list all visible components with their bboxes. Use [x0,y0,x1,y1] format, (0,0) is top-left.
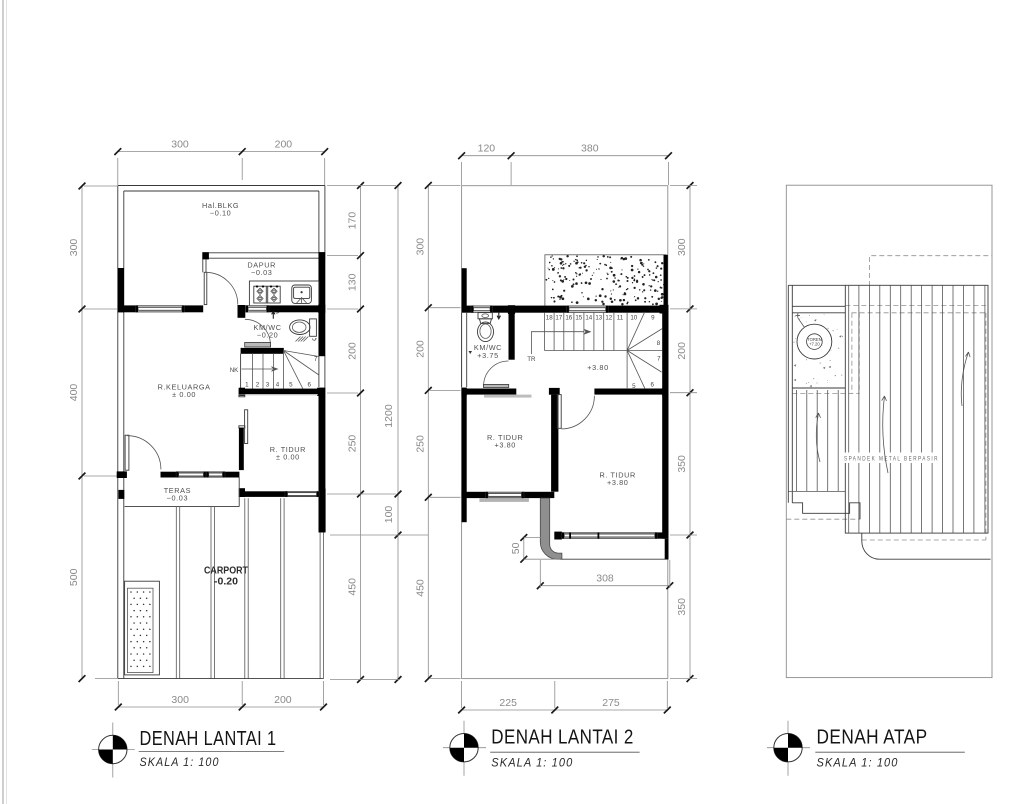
svg-text:DENAH ATAP: DENAH ATAP [817,727,928,749]
svg-text:TR: TR [527,356,536,363]
svg-text:3: 3 [266,382,270,389]
svg-text:120: 120 [478,143,496,155]
svg-text:250: 250 [347,435,359,453]
svg-text:450: 450 [347,578,359,596]
svg-text:−0.10: −0.10 [210,209,231,218]
svg-text:200: 200 [275,139,293,151]
svg-text:7: 7 [314,356,318,363]
svg-text:NK: NK [230,367,239,374]
svg-text:450: 450 [414,579,426,597]
svg-text:15: 15 [575,314,582,321]
svg-text:1200: 1200 [383,404,395,428]
svg-text:350: 350 [676,598,688,616]
svg-text:13: 13 [595,314,602,321]
svg-text:6: 6 [650,381,654,388]
svg-text:16: 16 [565,314,572,321]
svg-text:-0.20: -0.20 [214,577,239,588]
svg-text:130: 130 [347,273,359,291]
svg-text:200: 200 [414,340,426,358]
svg-text:+3.80: +3.80 [494,440,515,449]
svg-text:1: 1 [245,382,249,389]
svg-text:500: 500 [68,568,80,586]
svg-text:200: 200 [274,694,292,706]
svg-text:225: 225 [499,697,517,709]
svg-text:9: 9 [651,314,655,321]
svg-text:5: 5 [289,382,293,389]
svg-text:11: 11 [617,314,624,321]
svg-text:+3.75: +3.75 [477,351,498,360]
svg-text:−0.03: −0.03 [167,494,188,503]
svg-text:170: 170 [347,212,359,230]
svg-text:−0.20: −0.20 [257,331,278,340]
svg-text:7: 7 [657,355,661,362]
svg-text:SKALA 1: 100: SKALA 1: 100 [491,756,573,770]
svg-text:6: 6 [307,382,311,389]
svg-text:+3.80: +3.80 [607,478,628,487]
svg-text:308: 308 [596,573,614,585]
svg-text:SKALA 1: 100: SKALA 1: 100 [140,755,220,769]
svg-text:CARPORT: CARPORT [204,566,248,577]
svg-text:350: 350 [676,455,688,473]
svg-text:300: 300 [68,239,80,257]
svg-text:200: 200 [347,342,359,360]
svg-text:300: 300 [171,139,189,151]
svg-text:SPANDEK METAL BERPASIR: SPANDEK METAL BERPASIR [844,456,939,463]
svg-text:50: 50 [510,542,522,554]
svg-text:12: 12 [605,314,612,321]
svg-text:−0.03: −0.03 [251,268,272,277]
svg-text:SKALA 1: 100: SKALA 1: 100 [817,756,899,770]
svg-text:4: 4 [276,382,280,389]
svg-text:8: 8 [657,340,661,347]
svg-text:± 0.00: ± 0.00 [276,453,300,462]
svg-text:100: 100 [383,506,395,524]
svg-text:10: 10 [630,314,637,321]
svg-text:DENAH LANTAI 2: DENAH LANTAI 2 [491,727,634,749]
svg-text:+7.20: +7.20 [809,342,820,347]
svg-text:300: 300 [171,694,189,706]
svg-text:18: 18 [546,314,553,321]
svg-text:400: 400 [68,384,80,402]
svg-text:300: 300 [414,238,426,256]
svg-text:2: 2 [256,382,260,389]
svg-text:250: 250 [414,435,426,453]
svg-text:300: 300 [676,238,688,256]
svg-text:14: 14 [585,314,592,321]
svg-text:380: 380 [581,143,599,155]
svg-text:± 0.00: ± 0.00 [172,390,196,399]
svg-text:DENAH LANTAI 1: DENAH LANTAI 1 [140,728,277,750]
svg-text:+3.80: +3.80 [587,363,608,372]
svg-text:275: 275 [602,697,620,709]
svg-text:200: 200 [676,342,688,360]
svg-text:17: 17 [555,314,562,321]
